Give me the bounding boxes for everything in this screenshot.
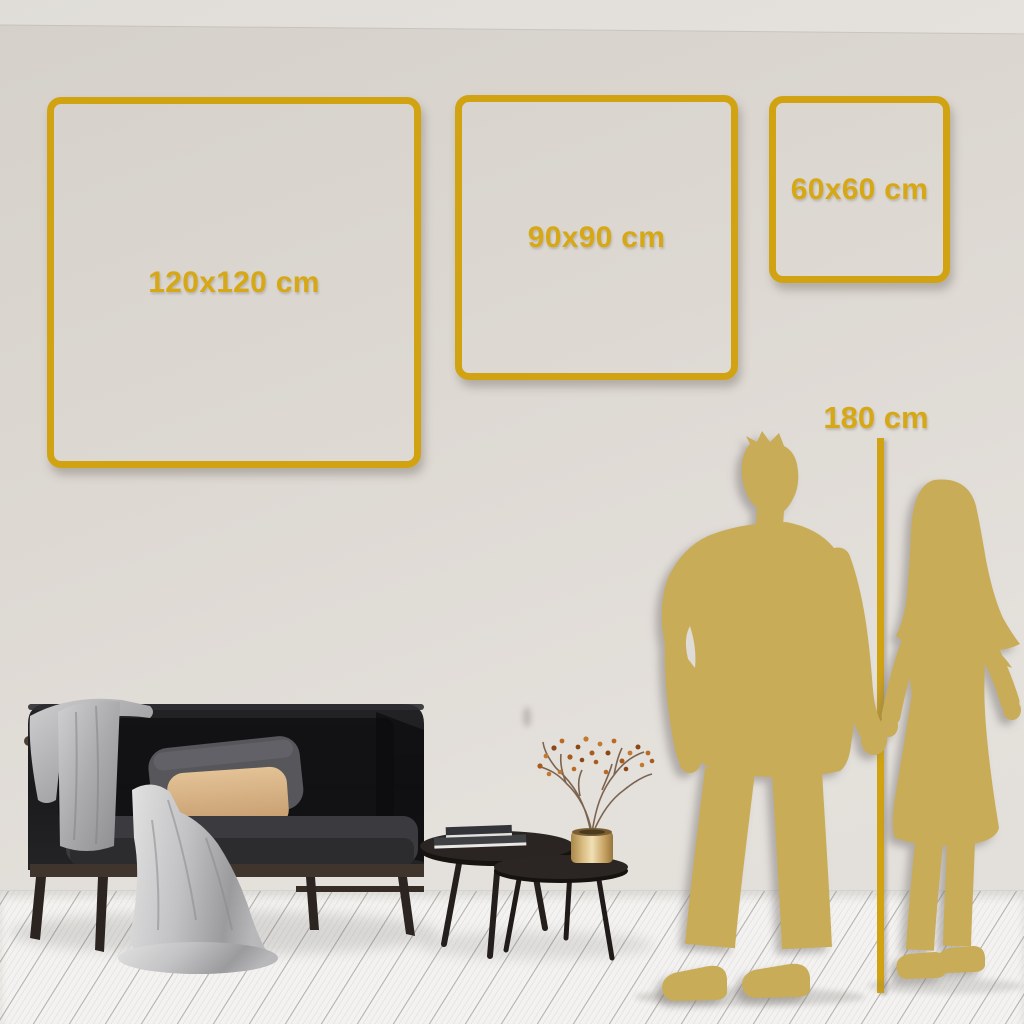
ceiling-line xyxy=(0,0,1024,35)
frame-60x60: 60x60 cm xyxy=(769,96,950,283)
floor-planks xyxy=(0,890,1024,1024)
woman-right-hand xyxy=(1003,700,1021,720)
sofa-arm-rail xyxy=(24,736,122,746)
frame-120x120-label: 120x120 cm xyxy=(148,266,320,300)
sofa-top-edge xyxy=(28,704,424,710)
man-arm-gap xyxy=(686,626,696,668)
sofa-inner-back xyxy=(58,718,394,822)
man-head xyxy=(742,431,799,528)
blanket-folds xyxy=(74,706,98,844)
frame-90x90: 90x90 cm xyxy=(455,95,738,380)
large-table-edge xyxy=(420,836,574,866)
dried-branch xyxy=(537,736,654,833)
small-table-edge xyxy=(494,859,628,883)
books-stack xyxy=(434,824,527,848)
man-left-arm xyxy=(676,640,690,758)
blanket-arm-drop xyxy=(58,701,120,851)
gray-pillow xyxy=(146,734,305,823)
wood-base-rail xyxy=(30,864,424,877)
size-guide-scene: 120x120 cm 90x90 cm 60x60 cm 180 cm xyxy=(0,0,1024,1024)
woman-left-arm xyxy=(891,632,915,716)
man-left-hand xyxy=(679,747,701,773)
height-marker-label: 180 cm xyxy=(816,400,936,436)
tan-pillow xyxy=(166,766,290,834)
wall-smudge xyxy=(523,707,531,727)
sofa-shell xyxy=(28,704,424,870)
small-table-top xyxy=(494,855,628,879)
woman-torso-skirt xyxy=(893,622,999,846)
woman-right-arm xyxy=(981,634,1010,702)
wood-floor xyxy=(0,890,1024,1024)
large-table-top xyxy=(420,831,574,861)
sofa-right-arm-shade xyxy=(376,712,424,862)
man-torso xyxy=(662,522,856,777)
blanket-arm-flap xyxy=(30,699,153,803)
frame-90x90-label: 90x90 cm xyxy=(528,221,666,255)
branch-berries xyxy=(537,736,654,776)
woman-hair-head xyxy=(896,480,1020,668)
seat-front xyxy=(70,838,414,866)
seat-cushion xyxy=(66,816,418,864)
frame-120x120: 120x120 cm xyxy=(47,97,421,468)
frame-60x60-label: 60x60 cm xyxy=(791,173,929,207)
brass-vase xyxy=(571,828,613,863)
man-right-arm xyxy=(838,560,873,733)
height-marker-line xyxy=(877,438,884,993)
